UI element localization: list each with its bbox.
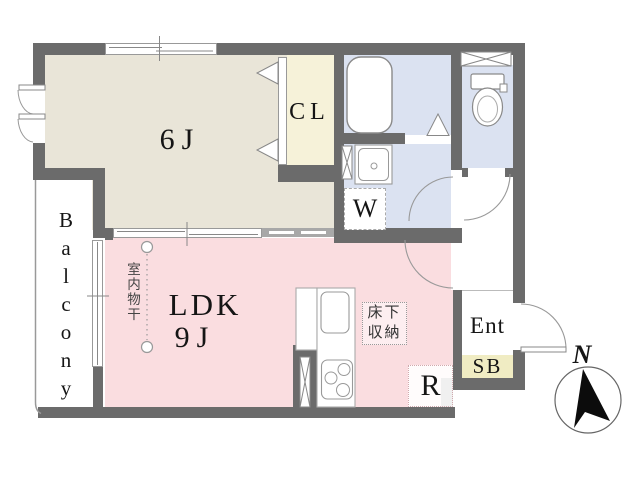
toilet-door-opening xyxy=(468,168,505,177)
wall xyxy=(453,290,462,378)
wall xyxy=(334,133,405,144)
underfloor-storage: 床下収納 xyxy=(362,302,407,345)
wall xyxy=(105,228,113,240)
north-label: N xyxy=(562,340,602,370)
wall xyxy=(334,55,344,243)
wall xyxy=(217,43,525,55)
refrigerator-space: R xyxy=(408,365,453,407)
wall xyxy=(293,345,318,407)
bathroom-floor xyxy=(344,55,451,135)
floor-plan: SB W 床下収納 R xyxy=(0,0,640,480)
living-label: LDK xyxy=(149,287,261,323)
wall xyxy=(93,180,105,238)
wall xyxy=(38,407,455,418)
shoe-box: SB xyxy=(462,355,513,378)
wall xyxy=(33,43,105,55)
living-size-label: 9J xyxy=(139,321,251,355)
wall xyxy=(441,378,525,390)
entrance-door-arc xyxy=(521,304,566,349)
sliding-window-top xyxy=(105,43,217,55)
wall xyxy=(33,168,105,180)
casement-window-opening xyxy=(33,87,45,114)
entrance-door-opening xyxy=(513,303,525,350)
wall xyxy=(451,55,462,170)
shoe-box-label: SB xyxy=(473,354,503,379)
entrance-door-leaf xyxy=(521,347,566,352)
balcony-label: Balcony xyxy=(53,208,78,404)
living-door-opening xyxy=(451,243,462,290)
bathroom-door-opening xyxy=(405,135,451,144)
washroom-door-opening xyxy=(451,170,462,228)
room-partition-panel xyxy=(262,228,334,237)
washer-label: W xyxy=(353,194,378,224)
washer-space: W xyxy=(344,188,386,230)
hallway-floor xyxy=(462,177,513,290)
refrigerator-label: R xyxy=(420,369,440,403)
wall xyxy=(334,228,462,243)
indoor-drying-label: 室内物干 xyxy=(122,262,142,322)
wall xyxy=(278,165,344,182)
closet-label: CL xyxy=(282,99,337,126)
underfloor-storage-label: 床下収納 xyxy=(365,304,405,343)
toilet-floor xyxy=(462,65,513,168)
balcony-sliding-door xyxy=(92,240,103,367)
casement-window-opening xyxy=(33,116,45,143)
bedroom-label: 6J xyxy=(120,123,240,157)
wall xyxy=(513,55,525,303)
wall xyxy=(93,367,103,408)
entrance-label: Ent xyxy=(462,313,513,339)
north-compass-icon xyxy=(555,367,621,433)
room-partition-sliding-door xyxy=(113,228,262,238)
